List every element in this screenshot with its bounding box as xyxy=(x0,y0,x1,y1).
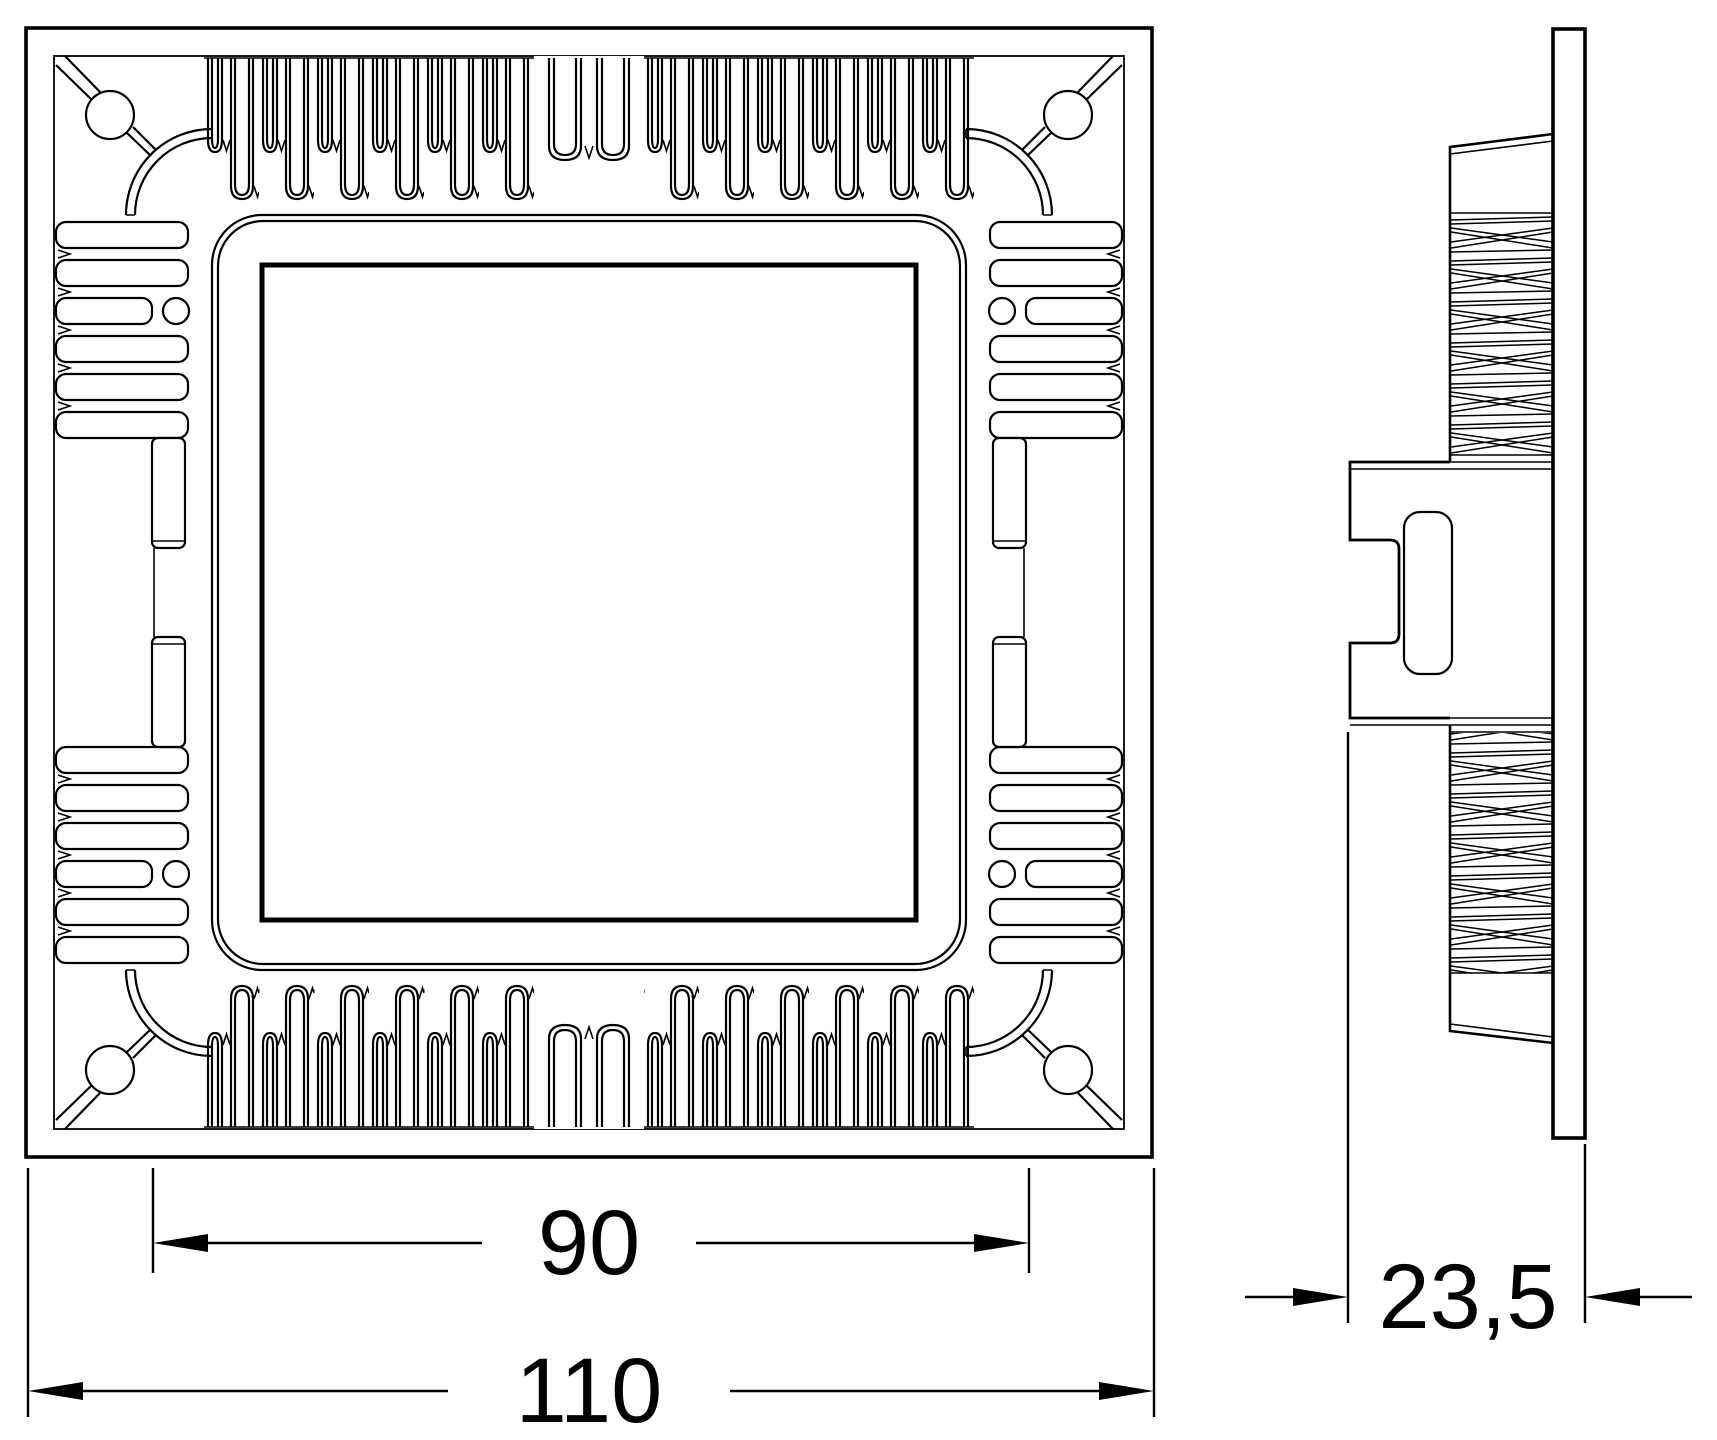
side-fins-upper xyxy=(1451,215,1553,455)
dimension-value-overall-width: 110 xyxy=(516,1340,663,1440)
dimension-value-overall-depth: 23,5 xyxy=(1378,1246,1557,1348)
technical-drawing-canvas: 90 110 23,5 xyxy=(0,0,1717,1440)
mounting-clip xyxy=(1350,462,1553,725)
dimension-fin-span: 90 xyxy=(153,1168,1029,1294)
front-view xyxy=(26,28,1152,1157)
heatsink-fins-top xyxy=(204,56,974,226)
side-fins-lower xyxy=(1451,733,1553,973)
drawing-sheet: 90 110 23,5 xyxy=(0,0,1717,1440)
side-view xyxy=(1350,29,1585,1138)
heatsink-fins-bottom xyxy=(204,959,974,1129)
heatsink-body-profile xyxy=(1450,134,1553,1043)
led-window xyxy=(262,265,916,920)
front-flange-plate xyxy=(1553,29,1585,1138)
dimension-value-fin-span: 90 xyxy=(538,1192,640,1294)
